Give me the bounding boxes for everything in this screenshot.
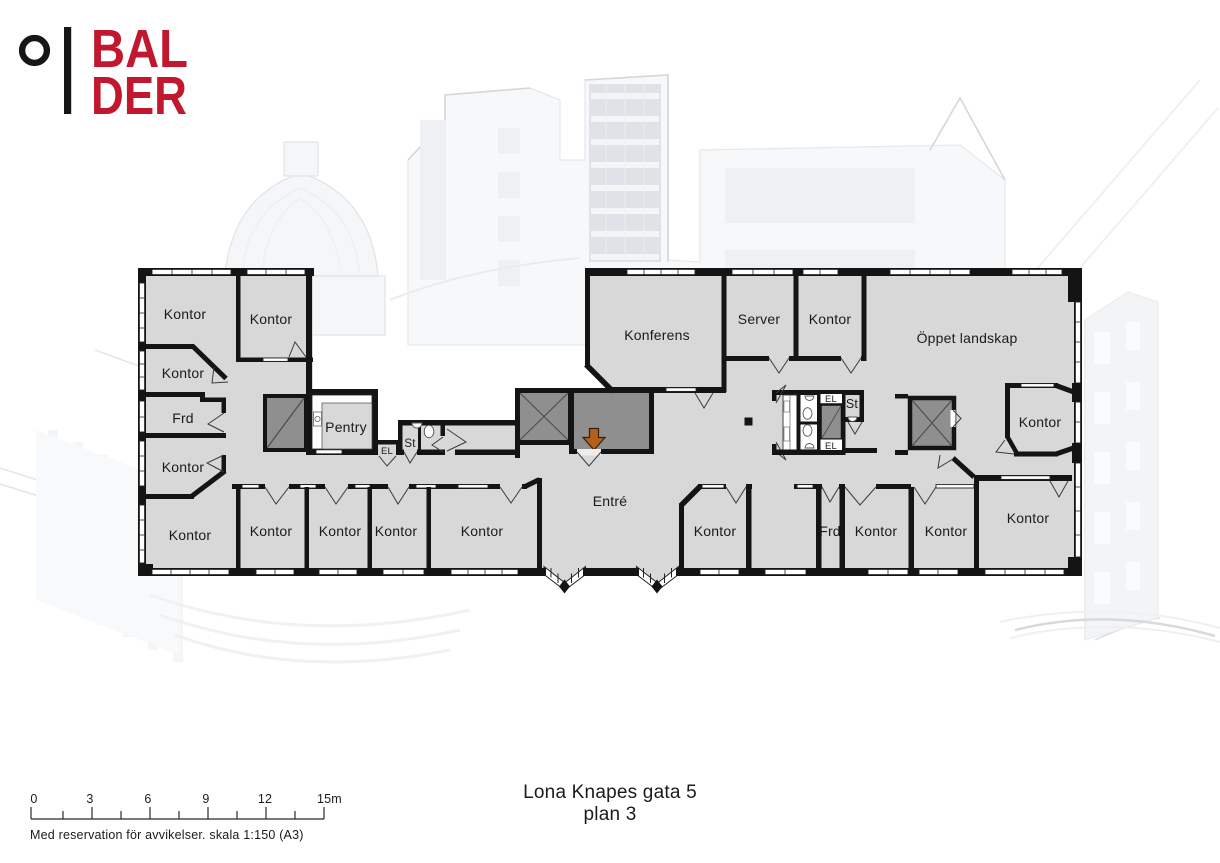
- svg-text:Kontor: Kontor: [375, 523, 418, 539]
- svg-text:Kontor: Kontor: [162, 365, 205, 381]
- svg-text:Öppet landskap: Öppet landskap: [917, 329, 1018, 346]
- svg-text:Kontor: Kontor: [809, 311, 852, 327]
- svg-text:St: St: [404, 438, 416, 450]
- svg-text:Pentry: Pentry: [325, 419, 367, 435]
- svg-text:6: 6: [144, 792, 151, 806]
- svg-text:Kontor: Kontor: [319, 523, 362, 539]
- svg-text:3: 3: [86, 792, 93, 806]
- svg-text:Kontor: Kontor: [250, 523, 293, 539]
- svg-text:Frd: Frd: [819, 523, 841, 539]
- svg-text:Kontor: Kontor: [694, 523, 737, 539]
- svg-text:Kontor: Kontor: [1019, 414, 1062, 430]
- svg-text:Kontor: Kontor: [250, 311, 293, 327]
- svg-text:Kontor: Kontor: [855, 523, 898, 539]
- svg-text:DER: DER: [91, 66, 187, 126]
- svg-text:9: 9: [202, 792, 209, 806]
- svg-text:Kontor: Kontor: [164, 306, 207, 322]
- svg-text:12: 12: [258, 792, 272, 806]
- svg-text:Frd: Frd: [172, 410, 194, 426]
- svg-text:Kontor: Kontor: [925, 523, 968, 539]
- svg-text:Server: Server: [738, 311, 781, 327]
- svg-text:Kontor: Kontor: [162, 459, 205, 475]
- svg-text:15m: 15m: [317, 792, 342, 806]
- svg-text:St: St: [846, 397, 859, 411]
- svg-text:Entré: Entré: [593, 493, 627, 509]
- svg-text:plan 3: plan 3: [584, 804, 637, 825]
- svg-text:0: 0: [30, 792, 37, 806]
- svg-text:Kontor: Kontor: [1007, 510, 1050, 526]
- svg-text:EL: EL: [825, 394, 837, 405]
- svg-text:EL: EL: [381, 446, 393, 457]
- svg-text:Kontor: Kontor: [169, 527, 212, 543]
- svg-text:Kontor: Kontor: [461, 523, 504, 539]
- svg-text:Konferens: Konferens: [624, 327, 690, 343]
- svg-text:EL: EL: [825, 441, 837, 452]
- svg-text:Lona Knapes gata 5: Lona Knapes gata 5: [523, 782, 697, 803]
- svg-text:Med reservation för avvikelser: Med reservation för avvikelser. skala 1:…: [30, 828, 304, 842]
